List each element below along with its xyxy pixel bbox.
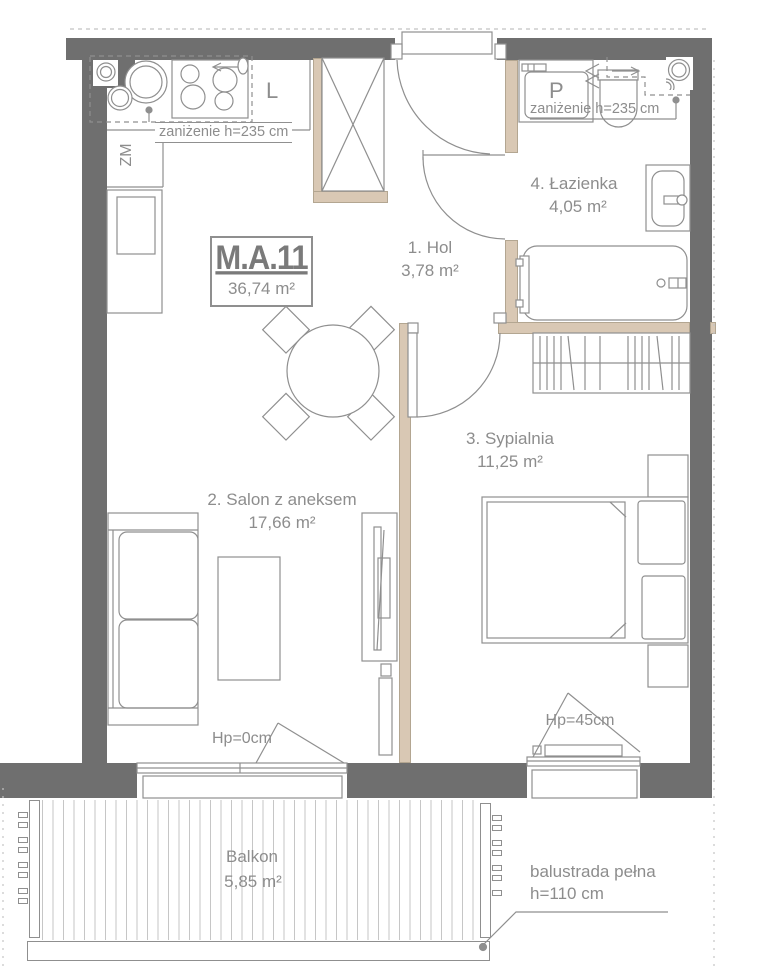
- room-area-salon: 17,66 m²: [248, 513, 315, 533]
- balustrade-leader: [480, 912, 669, 951]
- room-area-sypialnia: 11,25 m²: [477, 452, 543, 472]
- room-label-sypialnia: 3. Sypialnia: [466, 429, 554, 449]
- room-area-lazienka: 4,05 m²: [549, 197, 607, 217]
- shower-screen: [516, 256, 529, 313]
- lowered-ceiling-label-kitchen: zaniżenie h=235 cm: [155, 122, 292, 143]
- window-sill-label-salon: Hp=0cm: [212, 730, 272, 748]
- kitchen-sink: [93, 60, 167, 110]
- bed: [482, 497, 688, 643]
- unit-id: M.A.11: [212, 236, 311, 280]
- room-area-balkon: 5,85 m²: [224, 872, 282, 892]
- unit-area: 36,74 m²: [212, 279, 311, 299]
- fridge-label: L: [266, 78, 278, 104]
- bathroom-door: [423, 150, 505, 239]
- room-label-salon: 2. Salon z aneksem: [207, 490, 356, 510]
- balustrade-height-label: h=110 cm: [530, 884, 604, 904]
- bathtub: [523, 246, 687, 320]
- unit-card: M.A.11 36,74 m²: [210, 236, 313, 307]
- sofa: [108, 513, 198, 725]
- fridge: [107, 190, 162, 313]
- nightstand-top: [648, 455, 688, 497]
- dining-table: [287, 325, 379, 417]
- window-sill-label-bedroom: Hp=45cm: [546, 712, 615, 730]
- installation-shaft: [322, 58, 384, 191]
- bedroom-window: [527, 693, 640, 798]
- tv-cabinet: [362, 513, 397, 661]
- washer-label: P: [549, 78, 564, 104]
- vent-pipes: [658, 57, 693, 95]
- toilet: [586, 64, 639, 127]
- coffee-table: [218, 557, 280, 680]
- room-label-hol: 1. Hol: [408, 238, 452, 258]
- balustrade-label: balustrada pełna: [530, 862, 656, 882]
- nightstand-bottom: [648, 645, 688, 687]
- entrance-door: [391, 32, 506, 154]
- room-area-hol: 3,78 m²: [401, 261, 459, 281]
- washbasin: [646, 165, 690, 231]
- room-label-lazienka: 4. Łazienka: [531, 174, 618, 194]
- wardrobe: [533, 333, 690, 393]
- lowered-ceiling-leader-kitchen: [146, 107, 152, 122]
- room-label-balkon: Balkon: [226, 847, 278, 867]
- plan-linework: [0, 0, 760, 974]
- dishwasher-label: ZM: [118, 143, 136, 166]
- radiator-salon: [379, 664, 392, 755]
- floor-plan: M.A.11 36,74 m² 1. Hol 3,78 m² 2. Salon …: [0, 0, 760, 974]
- bedroom-door: [408, 313, 506, 417]
